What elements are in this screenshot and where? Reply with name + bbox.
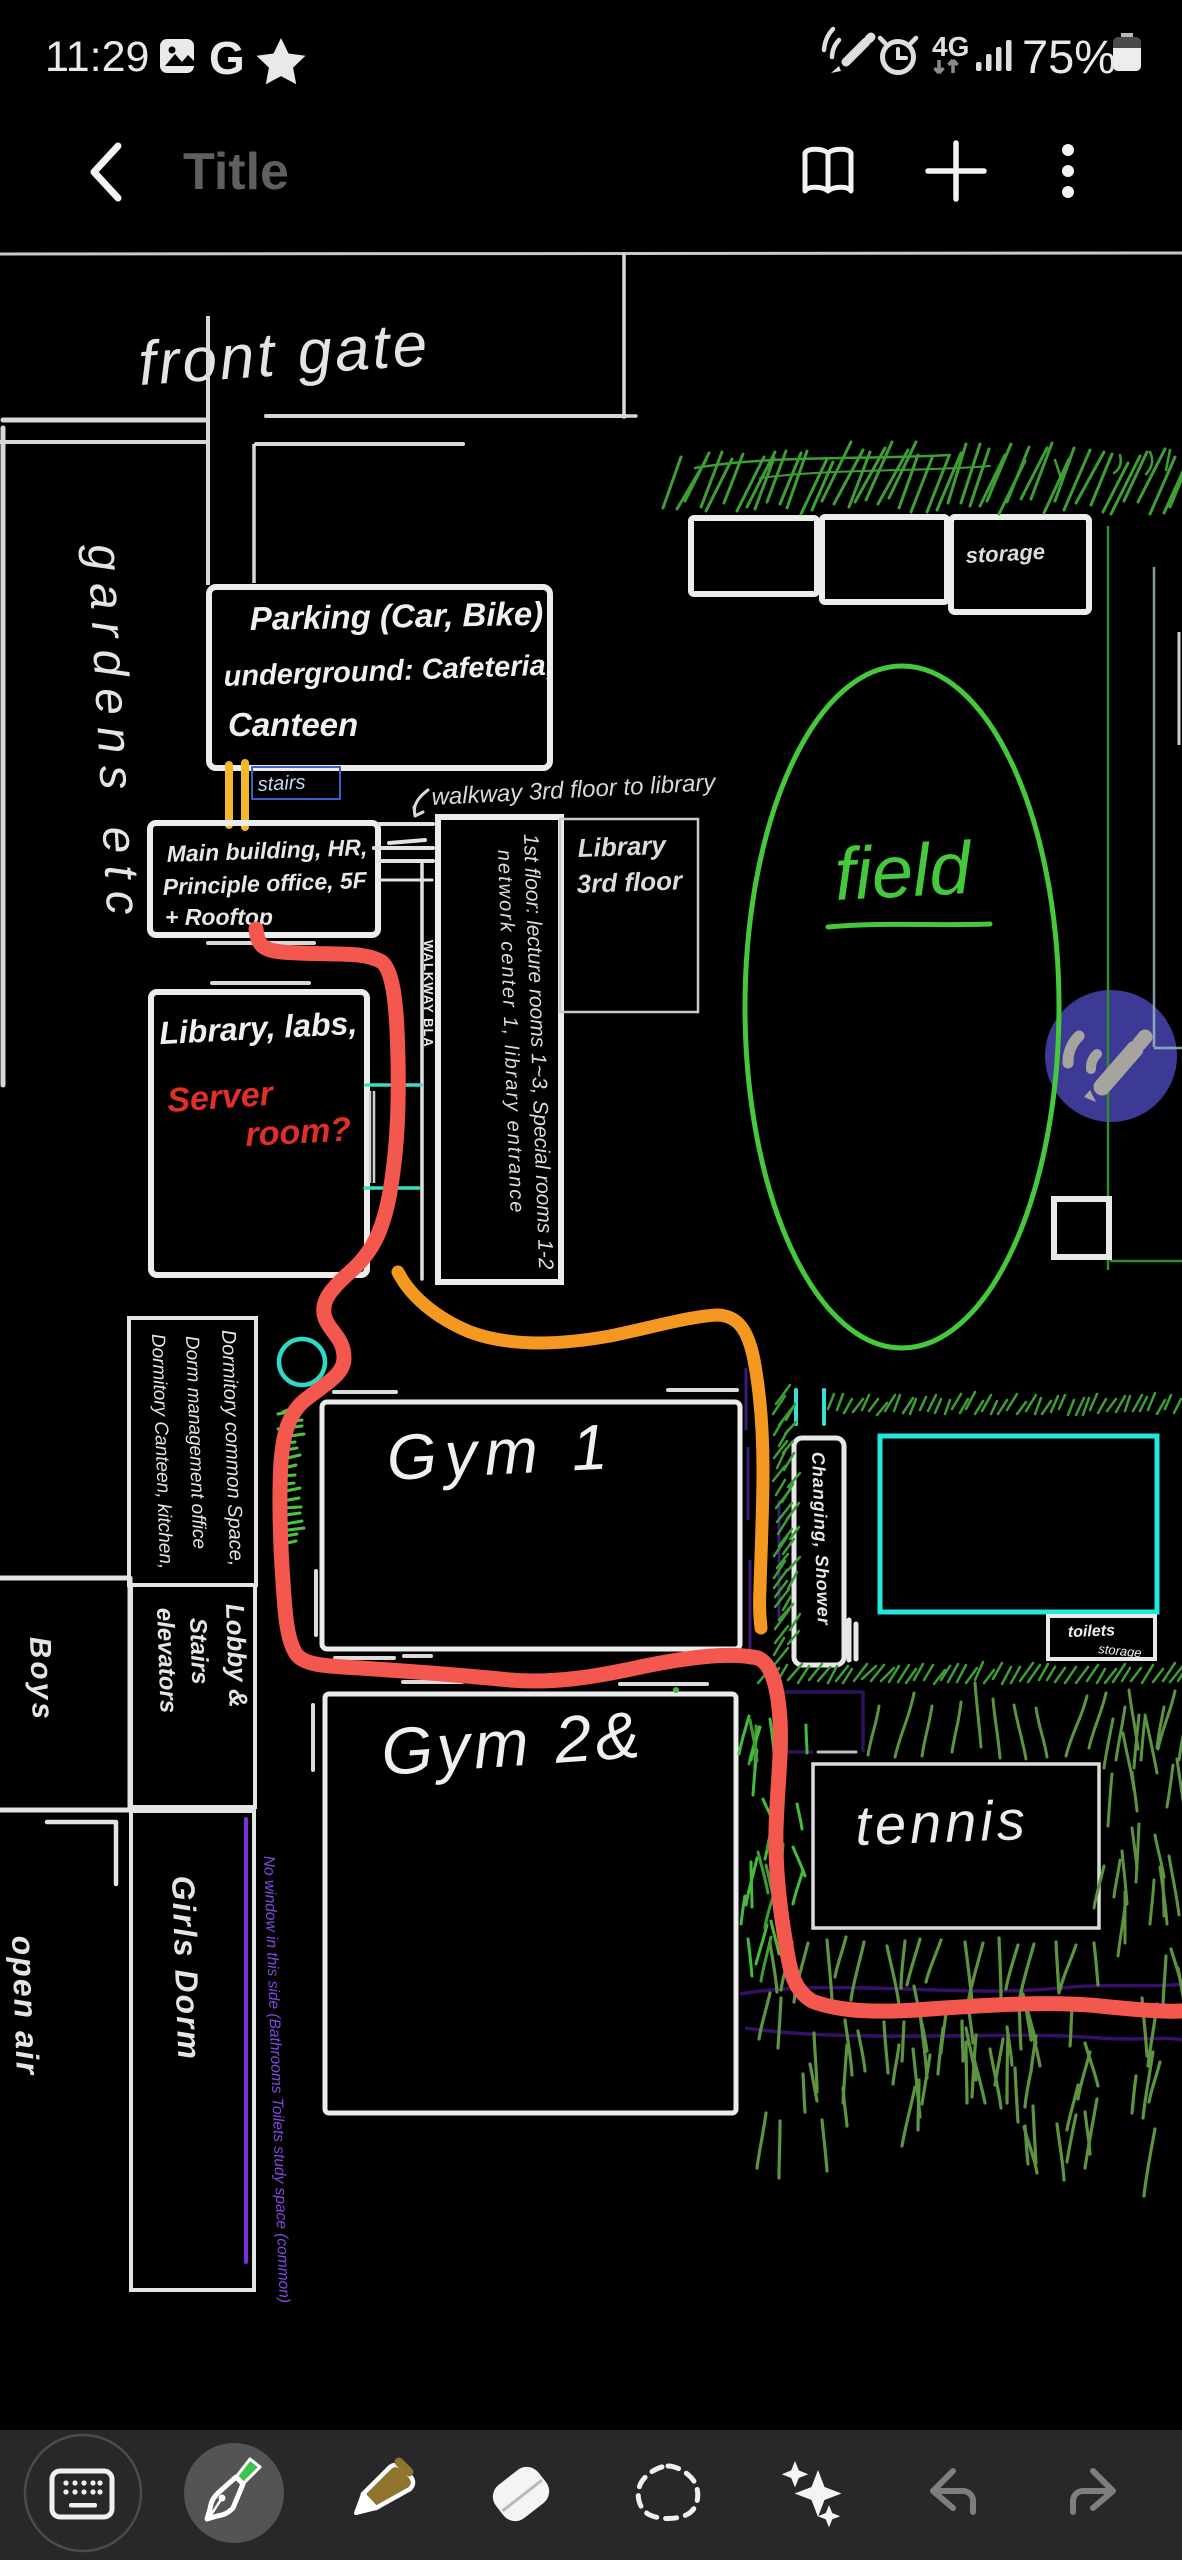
svg-text:75%: 75% [1022,30,1116,83]
svg-text:Stairs: Stairs [184,1617,213,1685]
svg-text:11:29: 11:29 [45,33,149,81]
svg-text:field: field [832,826,975,916]
svg-text:Parking (Car, Bike): Parking (Car, Bike) [249,595,543,637]
svg-text:room?: room? [244,1110,352,1153]
svg-text:G: G [209,32,245,84]
svg-text:tennis: tennis [854,1788,1030,1857]
svg-text:3rd floor: 3rd floor [576,865,684,899]
svg-text:elevators: elevators [151,1607,182,1713]
svg-text:storage: storage [965,539,1046,568]
svg-text:Boys: Boys [23,1636,59,1722]
svg-text:Title: Title [183,143,289,201]
svg-text:Gym 1: Gym 1 [385,1410,617,1494]
svg-text:toilets: toilets [1068,1622,1116,1641]
svg-text:WALKWAY BLA: WALKWAY BLA [421,940,436,1048]
svg-text:open air: open air [5,1935,46,2077]
svg-text:Girls Dorm: Girls Dorm [165,1875,207,2062]
svg-text:4G: 4G [932,31,969,62]
svg-text:Server: Server [166,1075,276,1120]
svg-text:Library: Library [577,830,668,863]
svg-text:stairs: stairs [257,772,306,796]
svg-text:Lobby &: Lobby & [220,1603,254,1708]
svg-text:Canteen: Canteen [228,706,358,743]
